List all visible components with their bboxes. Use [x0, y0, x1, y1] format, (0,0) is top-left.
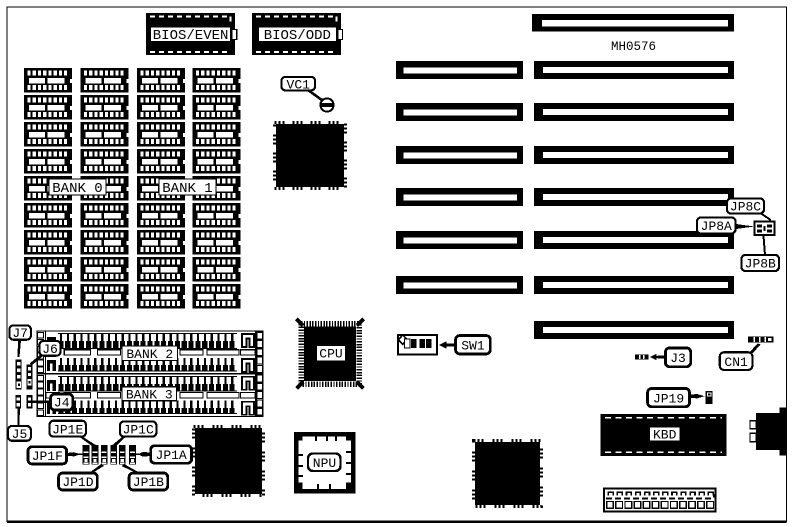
- svg-text:J6: J6: [42, 342, 58, 357]
- svg-text:JP1B: JP1B: [133, 475, 164, 490]
- svg-text:VC1: VC1: [287, 77, 311, 92]
- svg-text:J7: J7: [12, 326, 28, 341]
- svg-text:BIOS/ODD: BIOS/ODD: [264, 28, 331, 44]
- svg-text:NPU: NPU: [313, 456, 336, 471]
- svg-text:CPU: CPU: [319, 346, 342, 361]
- svg-text:KBD: KBD: [653, 427, 677, 442]
- svg-text:JP1A: JP1A: [156, 448, 187, 463]
- svg-text:SW1: SW1: [461, 338, 485, 353]
- svg-text:BANK 2: BANK 2: [126, 347, 173, 362]
- svg-text:BANK 0: BANK 0: [52, 181, 102, 197]
- svg-text:JP8C: JP8C: [730, 200, 761, 215]
- svg-text:JP8B: JP8B: [745, 257, 776, 272]
- svg-text:J4: J4: [54, 396, 70, 411]
- svg-text:J5: J5: [12, 427, 28, 442]
- svg-text:JP1E: JP1E: [52, 422, 83, 437]
- svg-text:BANK 3: BANK 3: [126, 388, 173, 403]
- svg-text:J3: J3: [670, 351, 686, 366]
- svg-text:JP1C: JP1C: [123, 423, 154, 438]
- svg-text:CN1: CN1: [724, 355, 748, 370]
- svg-text:JP1F: JP1F: [32, 449, 63, 464]
- svg-text:JP19: JP19: [653, 391, 684, 406]
- svg-text:MH0576: MH0576: [611, 40, 656, 54]
- svg-text:BIOS/EVEN: BIOS/EVEN: [153, 28, 229, 44]
- svg-text:BANK 1: BANK 1: [162, 181, 212, 197]
- svg-text:JP8A: JP8A: [701, 219, 732, 234]
- svg-text:JP1D: JP1D: [62, 475, 93, 490]
